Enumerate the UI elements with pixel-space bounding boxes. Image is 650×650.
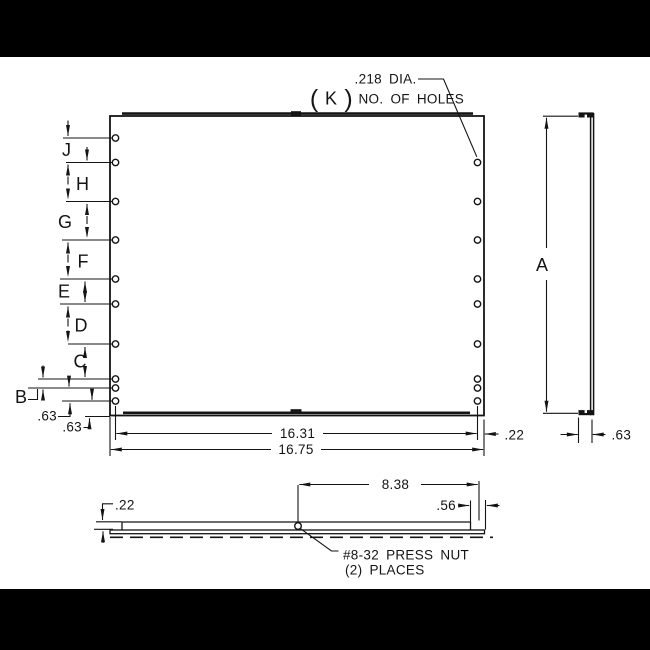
mounting-hole: [474, 385, 480, 391]
press-nut-note-line1: #8-32 PRESS NUT: [343, 548, 469, 563]
spacing-label-e: E: [58, 282, 70, 302]
mounting-hole: [112, 385, 118, 391]
mounting-hole: [474, 341, 480, 347]
mounting-hole: [474, 276, 480, 282]
mounting-hole: [474, 376, 480, 382]
hole-span-width-dim: 16.31: [280, 426, 315, 441]
spacing-label-h: H: [76, 174, 89, 194]
overall-width-dim: 16.75: [278, 442, 313, 457]
mounting-hole: [474, 159, 480, 165]
edge-margin-dim: .22: [505, 428, 525, 443]
spacing-label-c: C: [74, 352, 87, 372]
letterbox-bottom: [0, 589, 650, 650]
mounting-hole: [474, 237, 480, 243]
mounting-hole: [474, 398, 480, 404]
hole-count-paren-close: ): [344, 85, 352, 113]
spacing-label-b: B: [15, 387, 27, 407]
spacing-label-f: F: [78, 252, 89, 272]
hole-count-label: NO. OF HOLES: [359, 92, 465, 107]
nut-position-dim-text: 8.38: [382, 477, 409, 492]
letterbox-top: [0, 0, 650, 57]
mounting-hole: [112, 376, 118, 382]
hole-count-paren-open: (: [310, 85, 319, 113]
press-nut-hole: [295, 523, 302, 530]
mounting-hole: [112, 135, 118, 141]
mounting-hole: [474, 198, 480, 204]
drawing-canvas: .218 DIA. ( K ) NO. OF HOLES: [0, 0, 650, 650]
flange-offset-dim-text: .22: [115, 498, 135, 513]
mounting-hole: [474, 301, 480, 307]
mounting-hole: [112, 301, 118, 307]
bottom-spacing-dim-1: .63: [37, 409, 57, 424]
bottom-spacing-dim-2: .63: [62, 420, 82, 435]
spacing-label-g: G: [58, 212, 72, 232]
mounting-hole: [112, 198, 118, 204]
hole-diameter-callout: .218 DIA.: [355, 72, 417, 87]
bottom-tab: [291, 409, 302, 413]
spacing-label-d: D: [75, 316, 88, 336]
mounting-hole: [112, 276, 118, 282]
mounting-hole: [112, 341, 118, 347]
mounting-hole: [112, 159, 118, 165]
flange-depth-dim-text: .63: [612, 428, 632, 443]
height-label: A: [536, 255, 548, 275]
spacing-label-j: J: [62, 140, 71, 160]
mounting-hole: [112, 398, 118, 404]
hole-count-letter: K: [325, 89, 337, 109]
lip-edge-dim-text: .56: [436, 498, 456, 513]
drawing-sheet: [0, 57, 650, 589]
mounting-hole: [112, 237, 118, 243]
top-tab: [291, 111, 301, 116]
press-nut-note-line2: (2) PLACES: [345, 563, 425, 578]
